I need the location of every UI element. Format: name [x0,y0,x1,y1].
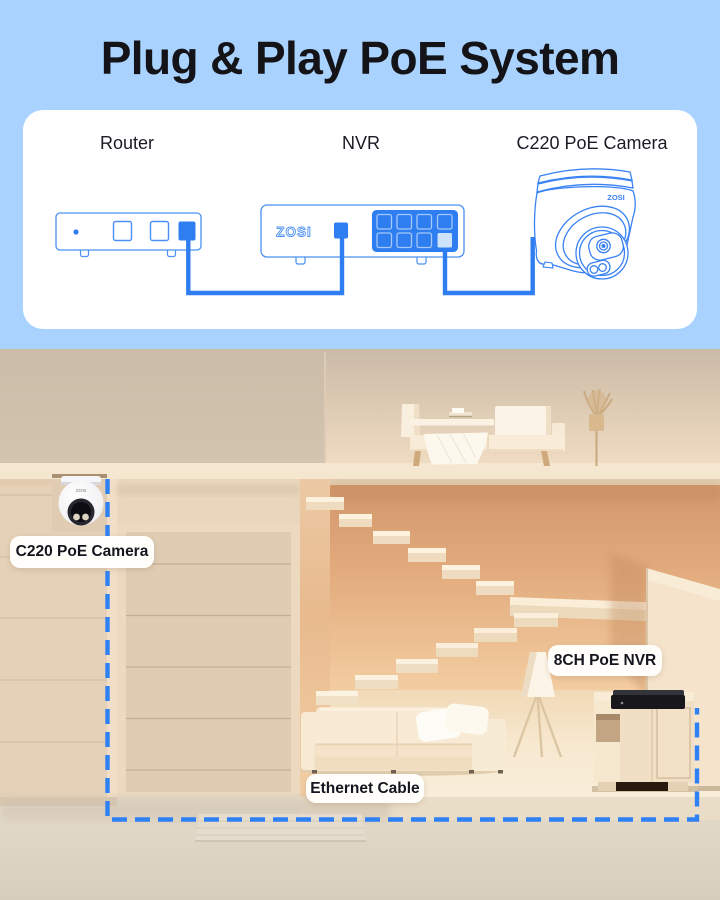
svg-text:ZOSI: ZOSI [76,488,87,493]
svg-text:ZOSI: ZOSI [276,225,312,240]
svg-text:ZOSI: ZOSI [607,193,625,202]
